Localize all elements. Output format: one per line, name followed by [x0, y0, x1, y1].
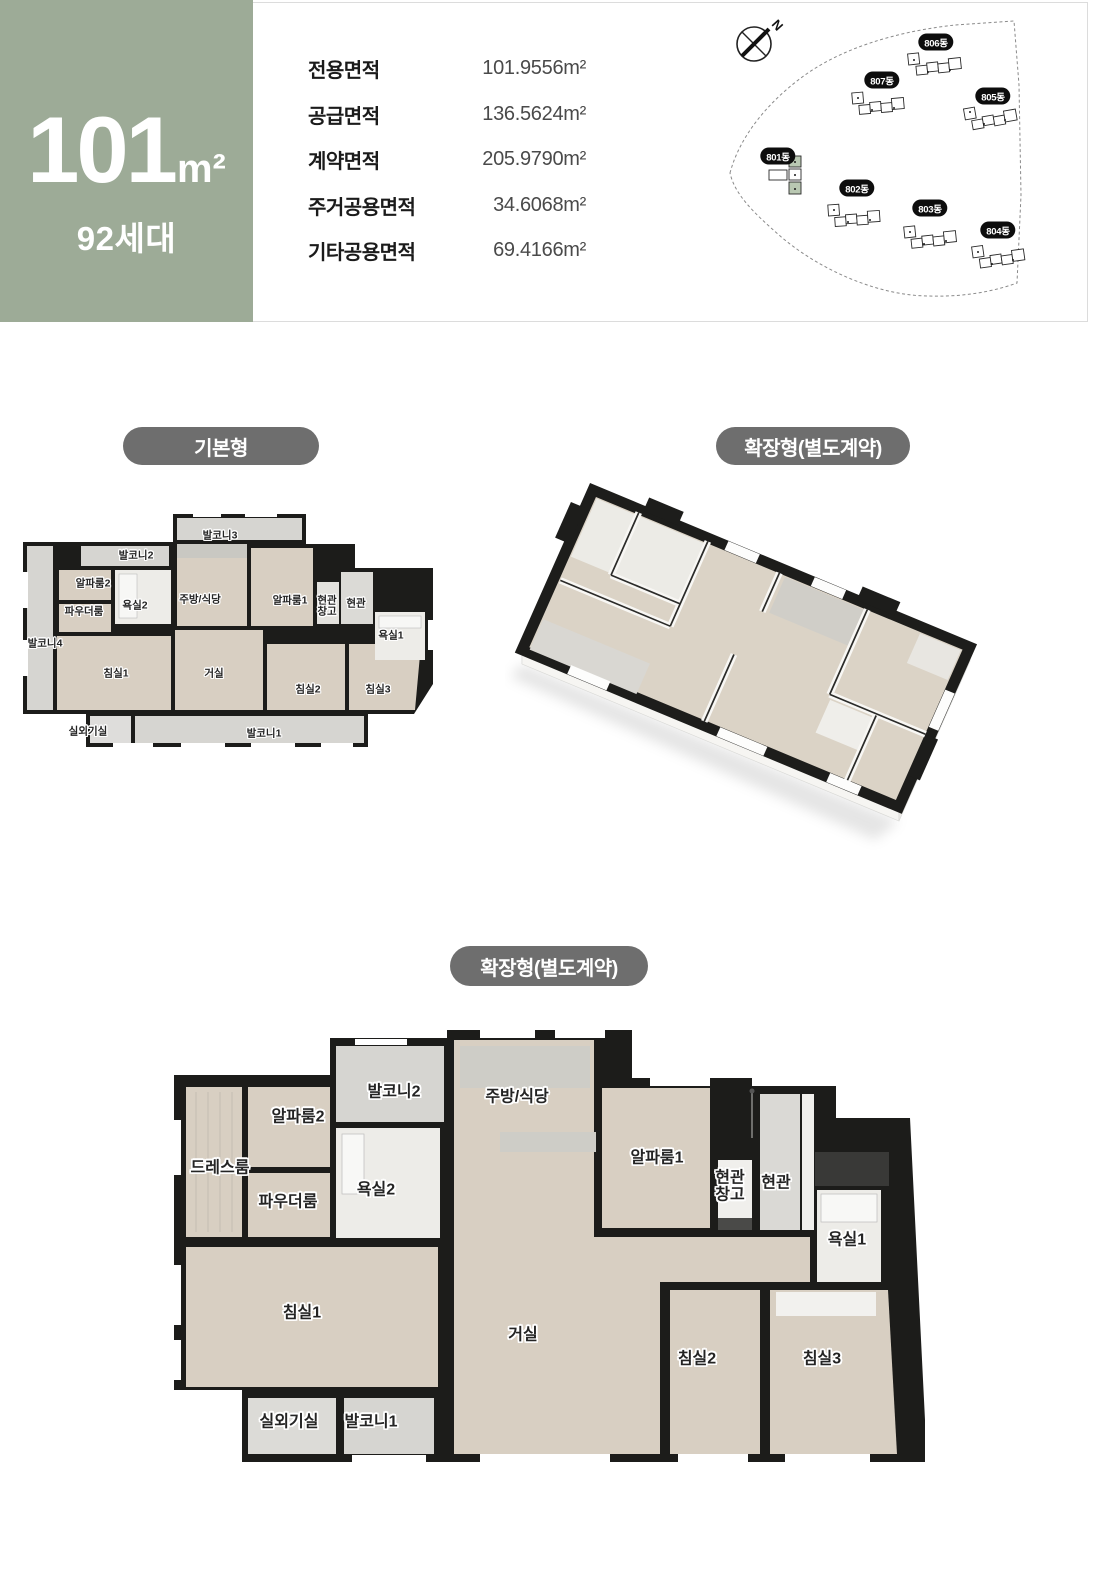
area-table-row: 전용면적101.9556m² — [308, 46, 586, 92]
room-label: 알파룸2 — [76, 578, 111, 589]
room-label: 욕실2 — [357, 1181, 395, 1198]
room-label: 알파룸2 — [271, 1108, 324, 1125]
area-table-row: 주거공용면적34.6068m² — [308, 183, 586, 229]
room-label: 현관 창고 — [317, 596, 336, 619]
tag-extended-type-3d: 확장형(별도계약) — [716, 427, 910, 465]
floor-plan-extended-svg — [170, 1030, 940, 1470]
room-label: 발코니2 — [119, 550, 154, 561]
building-footprint-807 — [852, 89, 905, 115]
building-label: 803동 — [912, 200, 947, 217]
area-row-value: 34.6068m² — [493, 194, 586, 217]
room-label: 파우더룸 — [259, 1193, 318, 1210]
area-table-row: 기타공용면적69.4166m² — [308, 228, 586, 274]
area-row-label: 전용면적 — [308, 54, 380, 83]
area-row-label: 계약면적 — [308, 145, 380, 174]
floor-plan-basic: 발코니3발코니2알파룸2욕실2주방/식당알파룸1현관 창고현관파우더룸발코니4욕… — [23, 512, 433, 757]
area-badge: 101 m² 92세대 — [0, 0, 253, 322]
compass-n-label: N — [769, 17, 786, 34]
site-map-svg: N — [700, 8, 1090, 310]
room-label: 욕실1 — [828, 1231, 866, 1248]
area-badge-main: 101 m² — [27, 108, 226, 193]
area-row-label: 주거공용면적 — [308, 191, 415, 220]
room-label: 주방/식당 — [179, 594, 221, 605]
building-footprint-803 — [904, 222, 957, 249]
area-row-label: 기타공용면적 — [308, 236, 415, 265]
area-row-label: 공급면적 — [308, 100, 380, 129]
floor-plan-basic-svg — [23, 512, 433, 757]
area-table-row: 계약면적205.9790m² — [308, 137, 586, 183]
area-unit: m² — [177, 151, 226, 187]
room-label: 드레스룸 — [191, 1159, 250, 1176]
room-label: 침실2 — [678, 1350, 716, 1367]
building-label: 805동 — [975, 88, 1010, 105]
area-row-value: 69.4166m² — [493, 239, 586, 262]
building-label: 807동 — [864, 72, 899, 89]
room-label: 주방/식당 — [485, 1088, 548, 1105]
room-label: 현관 — [761, 1174, 790, 1191]
area-row-value: 101.9556m² — [482, 57, 586, 80]
room-label: 욕실1 — [378, 630, 403, 641]
site-map: N — [700, 8, 1090, 310]
room-label: 발코니1 — [344, 1413, 397, 1430]
room-label: 실외기실 — [260, 1413, 319, 1430]
room-label: 현관 — [346, 598, 365, 609]
page: 101 m² 92세대 전용면적101.9556m²공급면적136.5624m²… — [0, 0, 1100, 1571]
room-label: 발코니4 — [28, 638, 63, 649]
tag-basic-type: 기본형 — [123, 427, 319, 465]
room-label: 알파룸1 — [273, 595, 308, 606]
floor-plan-extended-3d-svg — [505, 472, 1085, 922]
building-label-highlighted: 801동 — [760, 148, 795, 165]
room-label: 침실3 — [365, 684, 390, 695]
room-label: 침실1 — [103, 668, 128, 679]
building-label: 806동 — [918, 34, 953, 51]
area-row-value: 205.9790m² — [482, 148, 586, 171]
building-footprint-806 — [908, 49, 962, 76]
room-label: 침실1 — [283, 1304, 321, 1321]
building-label: 804동 — [980, 222, 1015, 239]
area-row-value: 136.5624m² — [482, 103, 586, 126]
area-table: 전용면적101.9556m²공급면적136.5624m²계약면적205.9790… — [308, 46, 586, 274]
area-value: 101 — [27, 108, 175, 193]
room-label: 침실2 — [295, 684, 320, 695]
area-table-row: 공급면적136.5624m² — [308, 92, 586, 138]
floor-plan-extended: 발코니2주방/식당알파룸2드레스룸욕실2파우더룸알파룸1현관 창고현관욕실1침실… — [170, 1030, 940, 1470]
room-label: 욕실2 — [122, 600, 147, 611]
building-footprint-802 — [828, 201, 880, 227]
room-label: 실외기실 — [69, 726, 108, 737]
room-label: 발코니3 — [203, 530, 238, 541]
room-label: 알파룸1 — [630, 1149, 683, 1166]
room-label: 거실 — [508, 1326, 537, 1343]
building-footprint-804 — [972, 240, 1026, 269]
room-label: 발코니2 — [367, 1083, 420, 1100]
households-count: 92세대 — [77, 212, 176, 260]
floor-plan-extended-3d — [505, 472, 1085, 922]
room-label: 침실3 — [803, 1350, 841, 1367]
room-label: 파우더룸 — [65, 606, 104, 617]
building-footprint-805 — [963, 100, 1017, 131]
room-label: 발코니1 — [247, 728, 282, 739]
room-label: 현관 창고 — [715, 1170, 744, 1205]
building-label: 802동 — [839, 180, 874, 197]
compass-icon: N — [737, 17, 786, 61]
tag-extended-type-2d: 확장형(별도계약) — [450, 946, 648, 986]
room-label: 거실 — [204, 668, 223, 679]
